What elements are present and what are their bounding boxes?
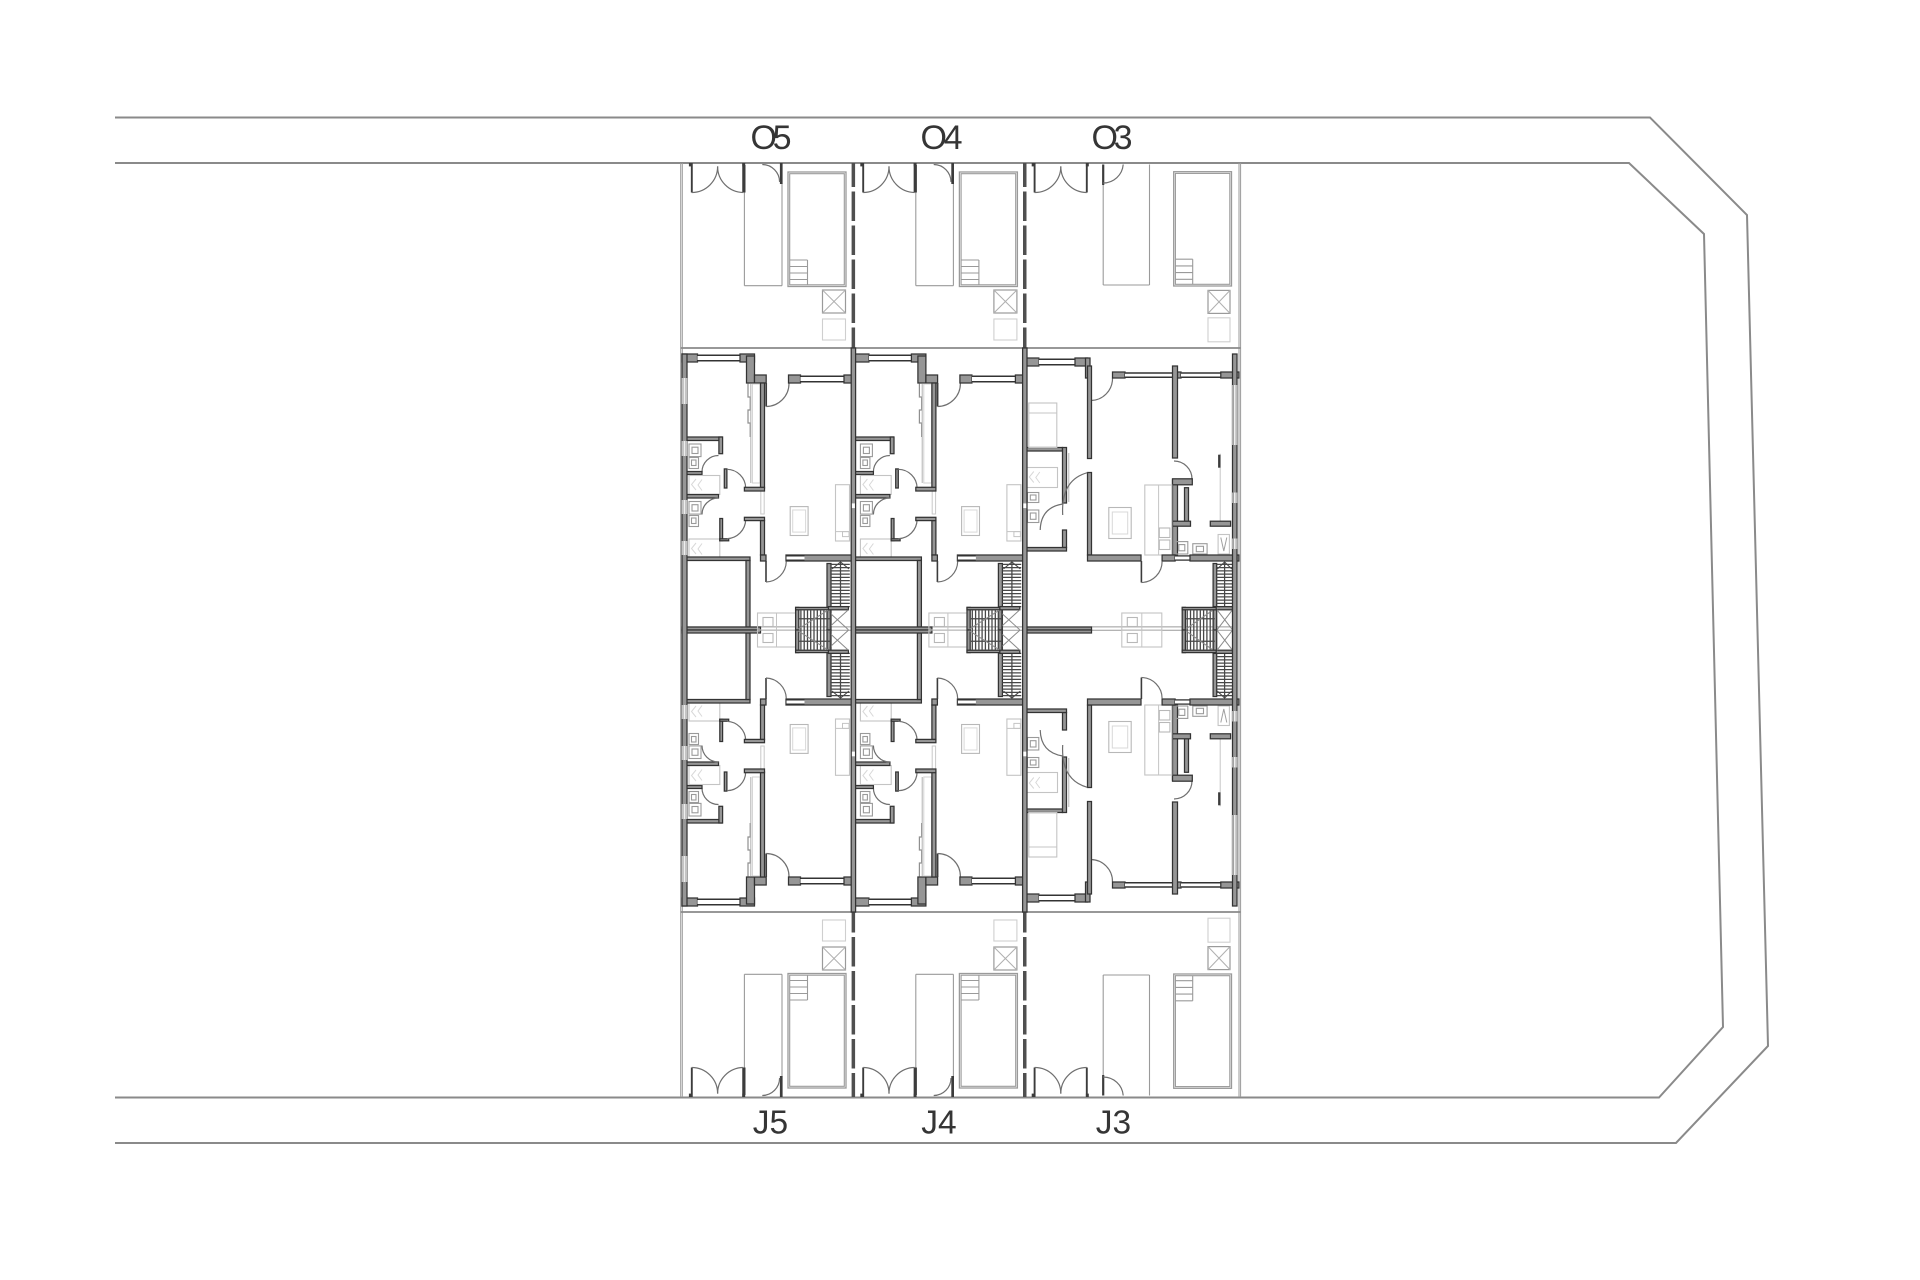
svg-text:O3: O3 xyxy=(1092,119,1133,157)
svg-text:O4: O4 xyxy=(921,119,963,157)
svg-text:O5: O5 xyxy=(751,119,792,157)
svg-text:J3: J3 xyxy=(1096,1105,1131,1142)
svg-text:J5: J5 xyxy=(753,1105,788,1142)
svg-text:J4: J4 xyxy=(921,1105,956,1142)
